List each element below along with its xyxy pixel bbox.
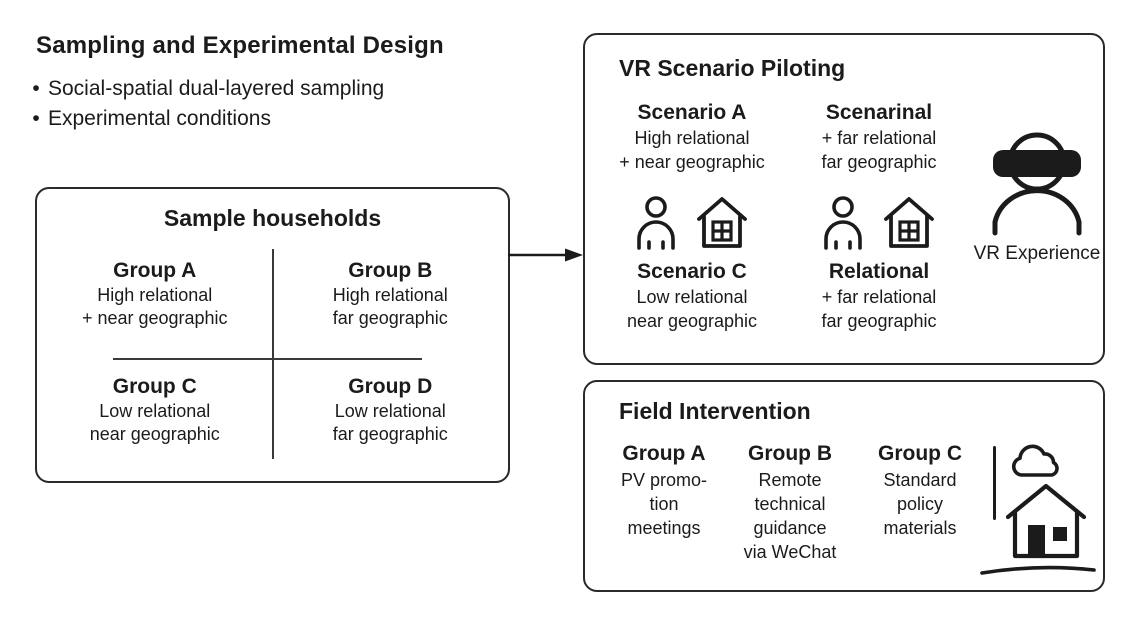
field-group-line: technical <box>727 492 853 516</box>
house-large-icon <box>999 482 1093 562</box>
figure-canvas: Sampling and Experimental Design • Socia… <box>0 0 1140 629</box>
bullet-icon: • <box>30 104 42 134</box>
cloud-icon <box>1007 442 1065 482</box>
sample-quadrant-grid: Group A High relational + near geographi… <box>37 244 508 481</box>
scenario-line: near geographic <box>601 309 783 333</box>
sample-households-box: Sample households Group A High relationa… <box>35 187 510 483</box>
arrow-icon <box>508 246 584 264</box>
field-group-line: policy <box>857 492 983 516</box>
field-group-line: materials <box>857 516 983 540</box>
field-group-name: Group C <box>857 440 983 468</box>
scenario-name: Scenario A <box>601 99 783 126</box>
field-illustration <box>993 440 1103 586</box>
field-group-name: Group B <box>727 440 853 468</box>
group-line: Low relational <box>37 400 273 423</box>
group-name: Group B <box>273 258 509 284</box>
group-name: Group A <box>37 258 273 284</box>
bullet-list: • Social-spatial dual-layered sampling •… <box>30 74 384 134</box>
vr-experience-figure: VR Experience <box>973 125 1101 265</box>
group-name: Group D <box>273 374 509 400</box>
group-b-cell: Group B High relational far geographic <box>273 244 509 360</box>
sample-box-title: Sample households <box>37 205 508 232</box>
page-title: Sampling and Experimental Design <box>36 32 444 60</box>
group-a-cell: Group A High relational + near geographi… <box>37 244 273 360</box>
house-icon <box>694 194 750 250</box>
group-line: near geographic <box>37 423 273 446</box>
field-group-line: PV promo- <box>605 468 723 492</box>
field-group-line: via WeChat <box>727 540 853 564</box>
field-group-a: Group A PV promo- tion meetings <box>605 440 723 540</box>
group-line: High relational <box>37 284 273 307</box>
bullet-icon: • <box>30 74 42 104</box>
scenario-line: far geographic <box>785 309 973 333</box>
scenario-name: Scenario C <box>601 258 783 285</box>
scenario-line: Low relational <box>601 285 783 309</box>
field-group-b: Group B Remote technical guidance via We… <box>727 440 853 564</box>
scenario-line: High relational <box>601 126 783 150</box>
person-icon <box>821 196 865 250</box>
person-house-icons <box>601 184 783 250</box>
group-line: High relational <box>273 284 509 307</box>
vr-box-title: VR Scenario Piloting <box>619 55 845 82</box>
vertical-line <box>993 446 996 520</box>
field-group-line: meetings <box>605 516 723 540</box>
group-d-cell: Group D Low relational far geographic <box>273 360 509 481</box>
vr-column-left: Scenario A High relational + near geogra… <box>601 99 783 333</box>
scenario-name: Relational <box>785 258 973 285</box>
vr-headset-person-icon <box>973 125 1101 237</box>
field-group-line: guidance <box>727 516 853 540</box>
house-icon <box>881 194 937 250</box>
vr-scenario-piloting-box: VR Scenario Piloting Scenario A High rel… <box>583 33 1105 365</box>
field-box-title: Field Intervention <box>619 398 811 425</box>
scenario-name: Scenarinal <box>785 99 973 126</box>
bullet-text: Social-spatial dual-layered sampling <box>48 74 384 104</box>
field-group-name: Group A <box>605 440 723 468</box>
group-line: far geographic <box>273 423 509 446</box>
field-group-c: Group C Standard policy materials <box>857 440 983 540</box>
vr-experience-label: VR Experience <box>973 243 1101 265</box>
group-line: Low relational <box>273 400 509 423</box>
scenario-line: far geographic <box>785 150 973 174</box>
field-group-line: Standard <box>857 468 983 492</box>
ground-line <box>979 562 1097 576</box>
person-icon <box>634 196 678 250</box>
field-group-line: tion <box>605 492 723 516</box>
vr-column-right: Scenarinal + far relational far geograph… <box>785 99 973 333</box>
field-intervention-box: Field Intervention Group A PV promo- tio… <box>583 380 1105 592</box>
bullet-item: • Social-spatial dual-layered sampling <box>30 74 384 104</box>
field-group-line: Remote <box>727 468 853 492</box>
scenario-line: + far relational <box>785 126 973 150</box>
bullet-item: • Experimental conditions <box>30 104 384 134</box>
scenario-line: + far relational <box>785 285 973 309</box>
scenario-line: + near geographic <box>601 150 783 174</box>
bullet-text: Experimental conditions <box>48 104 271 134</box>
group-line: + near geographic <box>37 307 273 330</box>
group-name: Group C <box>37 374 273 400</box>
group-c-cell: Group C Low relational near geographic <box>37 360 273 481</box>
person-house-icons <box>785 184 973 250</box>
group-line: far geographic <box>273 307 509 330</box>
